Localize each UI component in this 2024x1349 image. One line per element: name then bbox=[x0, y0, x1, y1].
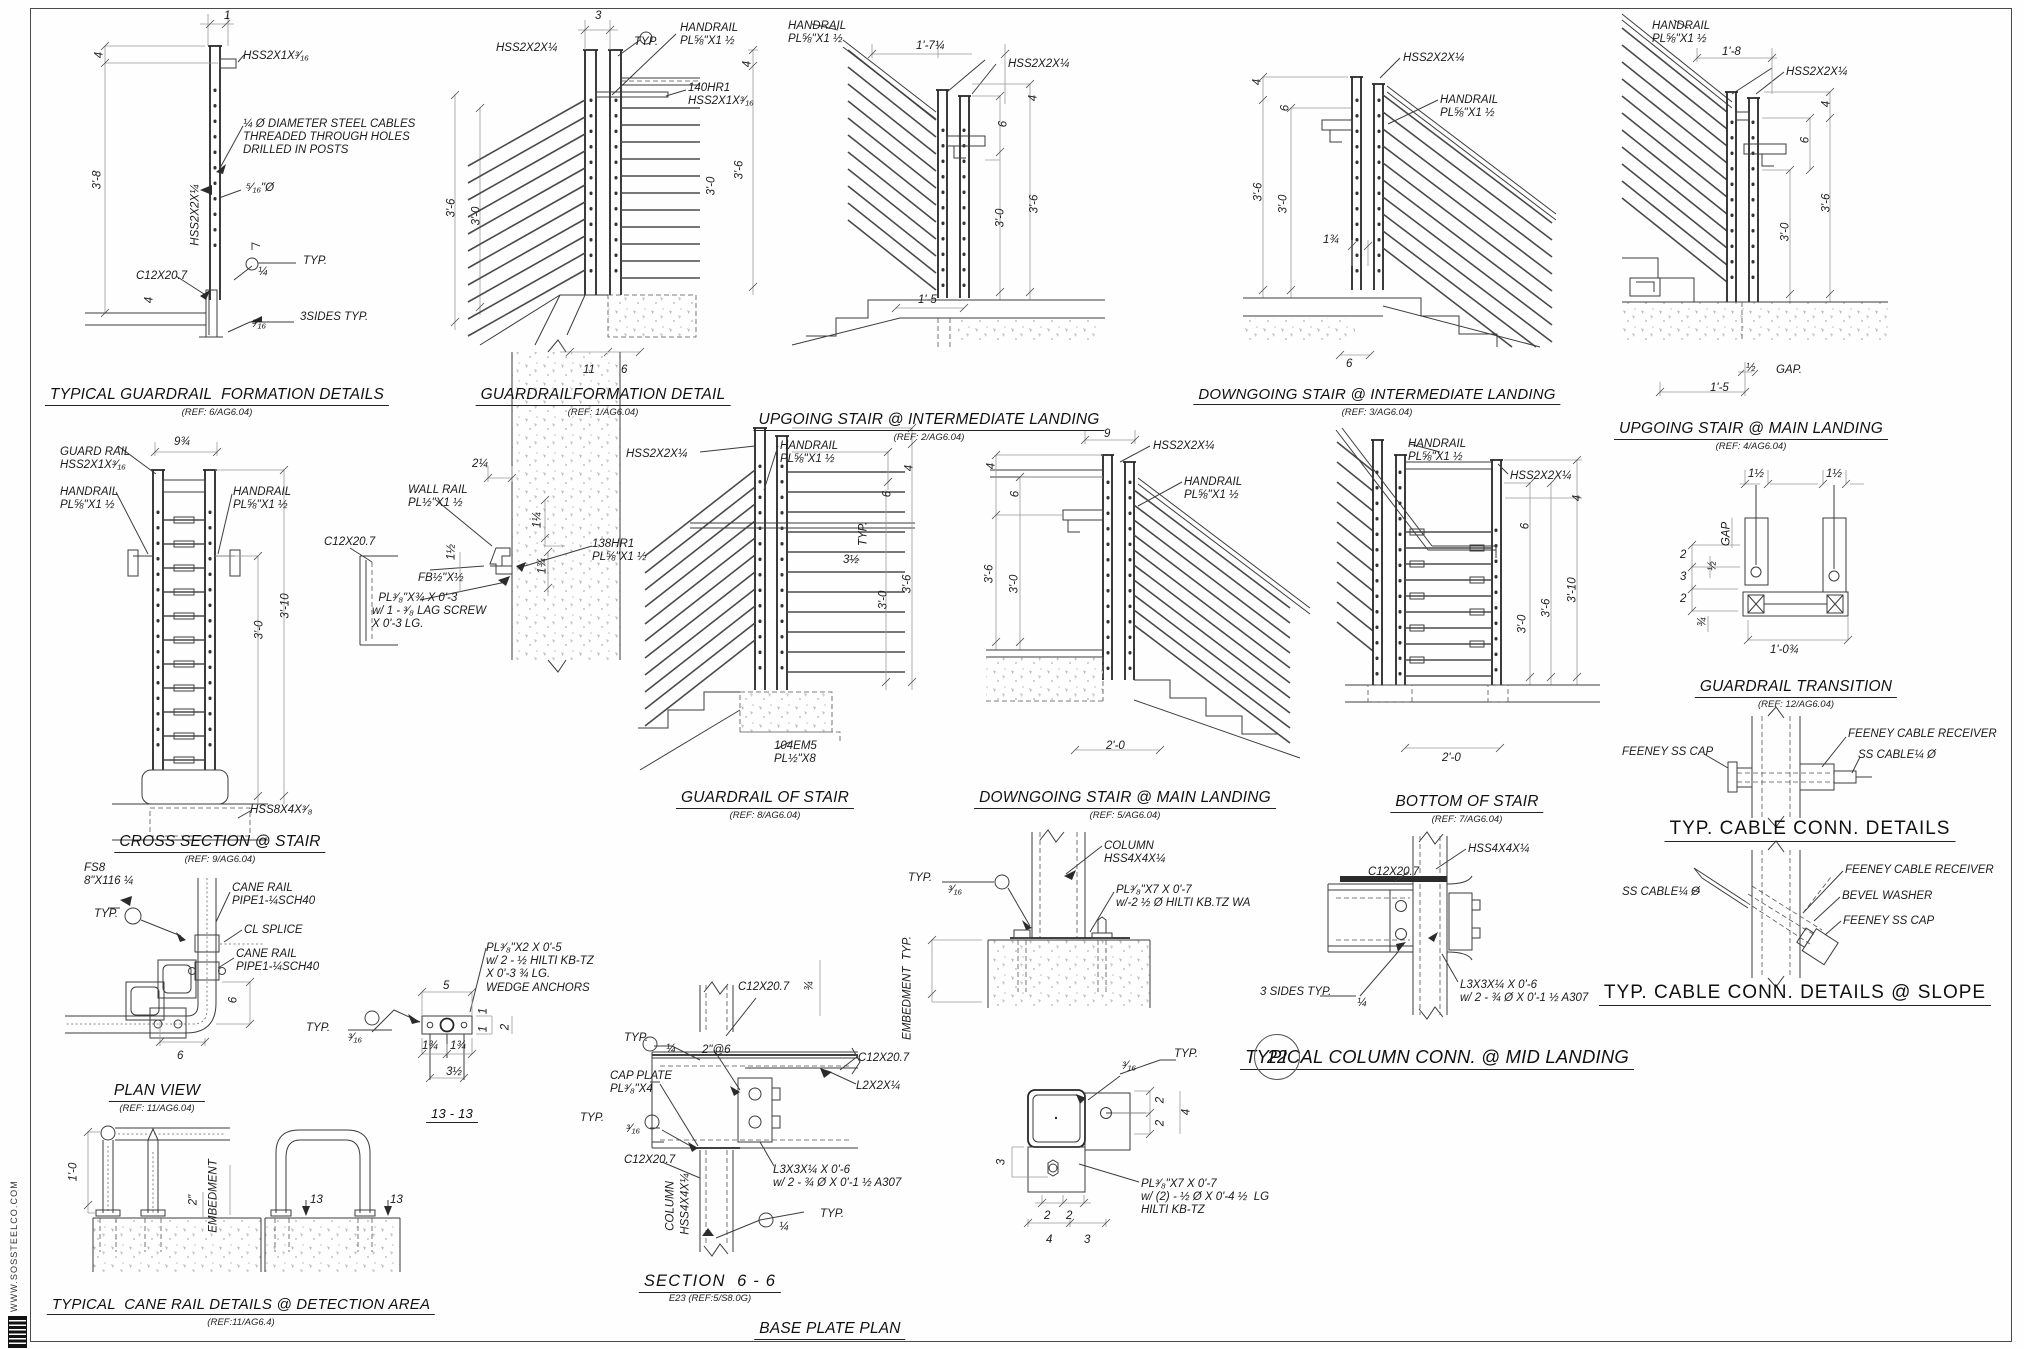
drawing-label: HANDRAIL PL⅝"X1 ½ bbox=[780, 440, 838, 466]
drawing-label: HANDRAIL PL⅝"X1 ½ bbox=[233, 486, 291, 512]
panel-title-p3: UPGOING STAIR @ INTERMEDIATE LANDING bbox=[753, 411, 1104, 431]
drawing-label: TYP. bbox=[820, 1208, 844, 1221]
drawing-label: 3'-0 bbox=[1779, 223, 1792, 242]
drawing-label: L2X2X¼ bbox=[856, 1080, 900, 1093]
drawing-label: 1'-0 bbox=[67, 1163, 80, 1182]
drawing-label: HANDRAIL PL⅝"X1 ½ bbox=[1652, 20, 1710, 46]
panel-title-p2: GUARDRAILFORMATION DETAIL bbox=[476, 386, 731, 406]
panel-title-p11: GUARDRAIL TRANSITION bbox=[1695, 678, 1897, 698]
drawing-label: TYP. bbox=[1174, 1048, 1198, 1061]
annotation-layer: TYPICAL GUARDRAIL FORMATION DETAILS(REF:… bbox=[0, 0, 2024, 1349]
panel-ref-p9: (REF: 5/AG6.04) bbox=[1090, 809, 1161, 821]
drawing-label: COLUMN HSS4X4X¼ bbox=[1104, 840, 1165, 866]
drawing-label: 3 SIDES TYP. bbox=[1260, 986, 1331, 999]
drawing-label: 104EM5 PL½"X8 bbox=[774, 740, 817, 766]
drawing-label: ³⁄₁₆ bbox=[1122, 1060, 1136, 1073]
panel-title-p6: CROSS SECTION @ STAIR bbox=[114, 833, 325, 853]
panel-title-p9: DOWNGOING STAIR @ MAIN LANDING bbox=[974, 789, 1276, 809]
drawing-label: ¾ bbox=[803, 981, 816, 991]
drawing-label: C12X20.7 bbox=[136, 270, 187, 283]
drawing-label: HSS2X2X¼ bbox=[626, 448, 687, 461]
drawing-label: 1¾ bbox=[450, 1040, 466, 1053]
drawing-label: TYP. bbox=[94, 908, 118, 921]
panel-ref-p17: E23 (REF:5/S8.0G) bbox=[669, 1292, 751, 1304]
drawing-label: 5 bbox=[443, 980, 449, 993]
drawing-label: 2'-0 bbox=[1442, 752, 1461, 765]
drawing-label: 3 bbox=[1680, 571, 1686, 584]
panel-ref-p10: (REF: 7/AG6.04) bbox=[1432, 813, 1503, 825]
drawing-label: 4 bbox=[1251, 79, 1264, 85]
drawing-label: GUARD RAIL HSS2X1X³⁄₁₆ bbox=[60, 446, 130, 472]
drawing-label: HANDRAIL PL⅝"X1 ½ bbox=[1440, 94, 1498, 120]
drawing-label: 3'-6 bbox=[733, 161, 746, 180]
drawing-label: ¼ bbox=[779, 1221, 789, 1234]
drawing-label: 6 bbox=[1346, 358, 1352, 371]
drawing-label: 3'-6 bbox=[445, 199, 458, 218]
drawing-label: 6 bbox=[1009, 491, 1022, 497]
drawing-label: 6 bbox=[1799, 137, 1812, 143]
panel-ref-p4: (REF: 3/AG6.04) bbox=[1342, 406, 1413, 418]
drawing-label: 3'-0 bbox=[705, 177, 718, 196]
panel-ref-p11: (REF: 12/AG6.04) bbox=[1758, 698, 1834, 710]
drawing-label: 6 bbox=[997, 121, 1010, 127]
panel-title-p1: TYPICAL GUARDRAIL FORMATION DETAILS bbox=[45, 386, 389, 406]
drawing-label: 1½ bbox=[445, 544, 458, 560]
drawing-label: 4 bbox=[143, 297, 156, 303]
drawing-label: 4 bbox=[1180, 1109, 1193, 1115]
drawing-label: CANE RAIL PIPE1-¼SCH40 bbox=[236, 948, 319, 974]
drawing-label: 2 bbox=[499, 1024, 512, 1030]
drawing-label: 4 bbox=[985, 463, 998, 469]
drawing-label: SS CABLE¼ Ø bbox=[1858, 749, 1936, 762]
drawing-label: ½ bbox=[1706, 561, 1719, 571]
drawing-label: TYP. bbox=[303, 255, 327, 268]
panel-title-p16: 13 - 13 bbox=[426, 1106, 478, 1123]
panel-ref-p15: (REF:11/AG6.4) bbox=[207, 1316, 274, 1328]
drawing-label: HSS2X2X¼ bbox=[1153, 440, 1214, 453]
drawing-label: SS CABLE¼ Ø bbox=[1622, 886, 1700, 899]
drawing-label: HSS2X2X¼ bbox=[1510, 470, 1571, 483]
panel-title-p4: DOWNGOING STAIR @ INTERMEDIATE LANDING bbox=[1193, 386, 1560, 405]
panel-title-p12: TYP. CABLE CONN. DETAILS bbox=[1665, 818, 1956, 842]
drawing-label: HSS2X2X¼ bbox=[496, 42, 557, 55]
drawing-label: 6 bbox=[1519, 523, 1532, 529]
drawing-label: 6 bbox=[621, 364, 627, 377]
panel-title-p10: BOTTOM OF STAIR bbox=[1390, 793, 1543, 813]
panel-title-p20: BASE PLATE PLAN bbox=[754, 1320, 905, 1340]
drawing-label: 3 bbox=[1084, 1234, 1090, 1247]
drawing-label: FS8 8"X116 ¼ bbox=[84, 862, 133, 888]
drawing-label: 3'-0 bbox=[994, 209, 1007, 228]
drawing-label: PL³⁄₈"X7 X 0'-7 w/ (2) - ½ Ø X 0'-4 ½ LG… bbox=[1141, 1178, 1269, 1218]
drawing-label: 2 bbox=[1044, 1210, 1050, 1223]
drawing-label: 1'-7¼ bbox=[916, 40, 944, 53]
drawing-label: HSS4X4X¼ bbox=[679, 1173, 692, 1234]
drawing-label: 1¾ bbox=[1323, 234, 1339, 247]
drawing-label: 13 bbox=[310, 1194, 323, 1207]
panel-ref-p6: (REF: 9/AG6.04) bbox=[185, 853, 256, 865]
drawing-label: ⁵⁄₁₆"Ø bbox=[246, 182, 274, 195]
drawing-label: TYP. bbox=[857, 522, 870, 546]
drawing-label: ³⁄₁₆ bbox=[348, 1032, 362, 1045]
drawing-label: TYP. bbox=[908, 872, 932, 885]
drawing-label: GAP. bbox=[1776, 364, 1802, 377]
drawing-label: CL SPLICE bbox=[244, 924, 303, 937]
drawing-label: 4 bbox=[741, 61, 754, 67]
panel-ref-p3: (REF: 2/AG6.04) bbox=[894, 431, 965, 443]
drawing-label: 4 bbox=[93, 52, 106, 58]
drawing-label: 9 bbox=[1104, 428, 1110, 441]
drawing-label: 2 bbox=[1066, 1210, 1072, 1223]
drawing-label: HANDRAIL PL⅝"X1 ½ bbox=[60, 486, 118, 512]
panel-title-p5: UPGOING STAIR @ MAIN LANDING bbox=[1614, 420, 1888, 440]
drawing-label: 4 bbox=[1571, 495, 1584, 501]
drawing-label: HSS2X2X¼ bbox=[1403, 52, 1464, 65]
drawing-label: 3½ bbox=[446, 1066, 462, 1079]
drawing-label: 1¼ bbox=[531, 512, 544, 528]
drawing-label: 3'-0 bbox=[1008, 575, 1021, 594]
drawing-label: FEENEY SS CAP bbox=[1622, 746, 1713, 759]
drawing-label: 2'-0 bbox=[1106, 740, 1125, 753]
drawing-label: 2 bbox=[1154, 1120, 1167, 1126]
drawing-label: 4 bbox=[1027, 95, 1040, 101]
drawing-label: HSS2X1X³⁄₁₆ bbox=[243, 50, 309, 63]
drawing-label: FEENEY CABLE RECEIVER bbox=[1845, 864, 1994, 877]
drawing-label: 1½ bbox=[1826, 468, 1842, 481]
drawing-label: CAP PLATE PL³⁄₈"X4 bbox=[610, 1070, 672, 1096]
drawing-label: WALL RAIL PL½"X1 ½ bbox=[408, 484, 468, 510]
panel-ref-p2: (REF: 1/AG6.04) bbox=[568, 406, 639, 418]
drawing-label: 3 bbox=[995, 1159, 1008, 1165]
panel-ref-p5: (REF: 4/AG6.04) bbox=[1716, 440, 1787, 452]
drawing-label: TYP. bbox=[306, 1022, 330, 1035]
drawing-label: 140HR1 HSS2X1X³⁄₁₆ bbox=[688, 82, 754, 108]
panel-ref-p1: (REF: 6/AG6.04) bbox=[182, 406, 253, 418]
drawing-label: HANDRAIL PL⅝"X1 ½ bbox=[1184, 476, 1242, 502]
drawing-label: 1 bbox=[477, 1026, 490, 1032]
drawing-label: C12X20.7 bbox=[624, 1154, 675, 1167]
drawing-label: ³⁄₁₆ bbox=[948, 884, 962, 897]
drawing-label: BEVEL WASHER bbox=[1842, 890, 1932, 903]
drawing-label: ¼ Ø DIAMETER STEEL CABLES THREADED THROU… bbox=[243, 118, 415, 158]
drawing-label: C12X20.7 bbox=[738, 981, 789, 994]
drawing-label: TYP. bbox=[624, 1032, 648, 1045]
drawing-label: GAP bbox=[1720, 522, 1733, 546]
drawing-label: 2"@6 bbox=[702, 1044, 731, 1057]
drawing-label: 9¾ bbox=[174, 436, 190, 449]
drawing-label: ¼ bbox=[666, 1043, 676, 1056]
drawing-sheet: TYPICAL GUARDRAIL FORMATION DETAILS(REF:… bbox=[0, 0, 2024, 1349]
panel-ref-p8: (REF: 8/AG6.04) bbox=[730, 809, 801, 821]
drawing-label: 1½ bbox=[1748, 468, 1764, 481]
drawing-label: 2 bbox=[1154, 1097, 1167, 1103]
drawing-label: 3'-0 bbox=[253, 621, 266, 640]
drawing-label: ¼ bbox=[1357, 997, 1367, 1010]
drawing-label: FEENEY SS CAP bbox=[1843, 915, 1934, 928]
panel-title-p17: SECTION 6 - 6 bbox=[639, 1272, 781, 1293]
drawing-label: 3'-0 bbox=[877, 591, 890, 610]
drawing-label: 2¼ bbox=[472, 458, 488, 471]
drawing-label: 6 bbox=[177, 1050, 183, 1063]
drawing-label: HANDRAIL PL⅝"X1 ½ bbox=[680, 22, 738, 48]
drawing-label: 2" bbox=[187, 1195, 200, 1205]
drawing-label: 4 bbox=[1046, 1234, 1052, 1247]
drawing-label: 2 bbox=[1680, 593, 1686, 606]
drawing-label: 3'-0 bbox=[470, 207, 483, 226]
drawing-label: PL³⁄₈"X7 X 0'-7 w/-2 ½ Ø HILTI KB.TZ WA bbox=[1116, 884, 1250, 910]
drawing-label: PL³⁄₈"X2 X 0'-5 w/ 2 - ½ HILTI KB-TZ X 0… bbox=[486, 942, 594, 995]
drawing-label: HSS4X4X¼ bbox=[1468, 843, 1529, 856]
drawing-label: 3'-6 bbox=[1252, 183, 1265, 202]
drawing-label: C12X20.7 bbox=[858, 1052, 909, 1065]
drawing-label: FEENEY CABLE RECEIVER bbox=[1848, 728, 1997, 741]
drawing-label: 6 bbox=[881, 491, 894, 497]
drawing-label: 4 bbox=[1820, 101, 1833, 107]
drawing-label: PL³⁄₈"X¾ X 0'-3 w/ 1 - ³⁄₈ LAG SCREW X 0… bbox=[372, 592, 486, 632]
drawing-label: 3'-6 bbox=[1540, 599, 1553, 618]
drawing-label: 1'-0¾ bbox=[1770, 644, 1798, 657]
drawing-label: C12X20.7 bbox=[324, 536, 375, 549]
drawing-label: HSS2X2X¼ bbox=[189, 184, 202, 245]
drawing-label: C12X20.7 bbox=[1368, 866, 1419, 879]
drawing-label: 6 bbox=[1279, 105, 1292, 111]
drawing-label: 3SIDES TYP. bbox=[300, 311, 368, 324]
drawing-label: HSS2X2X¼ bbox=[1786, 66, 1847, 79]
panel-title-p8: GUARDRAIL OF STAIR bbox=[676, 789, 854, 809]
company-logo bbox=[8, 1316, 27, 1348]
drawing-label: 1'-8 bbox=[1722, 46, 1741, 59]
drawing-label: HANDRAIL PL⅝"X1 ½ bbox=[1408, 438, 1466, 464]
drawing-label: 3 bbox=[595, 10, 601, 23]
drawing-label: 3'-6 bbox=[1028, 195, 1041, 214]
panel-ref-p14: (REF: 11/AG6.04) bbox=[119, 1102, 194, 1114]
panel-title-p15: TYPICAL CANE RAIL DETAILS @ DETECTION AR… bbox=[47, 1296, 435, 1315]
drawing-label: ³⁄₁₆ bbox=[626, 1123, 640, 1136]
drawing-label: L3X3X¼ X 0'-6 w/ 2 - ¾ Ø X 0'-1 ½ A307 bbox=[773, 1164, 901, 1190]
drawing-label: HSS8X4X³⁄₈ bbox=[250, 804, 312, 817]
drawing-label: 3'-10 bbox=[1566, 577, 1579, 602]
drawing-label: COLUMN bbox=[664, 1181, 677, 1231]
drawing-label: 1'-5 bbox=[1710, 382, 1729, 395]
drawing-label: 1¾ bbox=[422, 1040, 438, 1053]
drawing-label: 3'-8 bbox=[91, 171, 104, 190]
drawing-label: CANE RAIL PIPE1-¼SCH40 bbox=[232, 882, 315, 908]
drawing-label: HSS2X2X¼ bbox=[1008, 58, 1069, 71]
drawing-label: 6 bbox=[227, 997, 240, 1003]
detail-number-circle-p19: 22 bbox=[1254, 1034, 1300, 1080]
drawing-label: 1 bbox=[477, 1008, 490, 1014]
drawing-label: HANDRAIL PL⅝"X1 ½ bbox=[788, 20, 846, 46]
drawing-label: ¼ bbox=[258, 266, 268, 279]
panel-title-p13: TYP. CABLE CONN. DETAILS @ SLOPE bbox=[1599, 982, 1991, 1006]
drawing-label: FB½"X½ bbox=[418, 572, 464, 585]
drawing-label: 1'-5 bbox=[918, 294, 937, 307]
drawing-label: EMBEDMENT bbox=[207, 1159, 220, 1232]
drawing-label: TYP. bbox=[580, 1112, 604, 1125]
drawing-label: 3'-10 bbox=[279, 593, 292, 618]
drawing-label: 3'-0 bbox=[1516, 615, 1529, 634]
drawing-label: 3'-0 bbox=[1277, 195, 1290, 214]
company-website-vertical: WWW.SOSSTEELCO.COM bbox=[9, 1180, 19, 1312]
drawing-label: 3'-6 bbox=[983, 565, 996, 584]
drawing-label: ³⁄₁₆ bbox=[252, 318, 266, 331]
drawing-label: 1¾ bbox=[536, 558, 549, 574]
drawing-label: 13 bbox=[390, 1194, 403, 1207]
drawing-label: 3½ bbox=[843, 554, 859, 567]
drawing-label: 4 bbox=[903, 465, 916, 471]
drawing-label: 3'-6 bbox=[1820, 194, 1833, 213]
drawing-label: 1 bbox=[224, 10, 230, 23]
drawing-label: 11 bbox=[583, 364, 595, 377]
drawing-label: ½ bbox=[1746, 362, 1756, 375]
drawing-label: EMBEDMENT TYP. bbox=[901, 936, 914, 1040]
drawing-label: 3'-6 bbox=[901, 575, 914, 594]
drawing-label: TYP. bbox=[634, 36, 658, 49]
drawing-label: ¾ bbox=[1696, 617, 1709, 627]
drawing-label: 138HR1 PL⅝"X1 ½ bbox=[592, 538, 647, 564]
drawing-label: L3X3X¼ X 0'-6 w/ 2 - ¾ Ø X 0'-1 ½ A307 bbox=[1460, 979, 1588, 1005]
drawing-label: 2 bbox=[1680, 549, 1686, 562]
panel-title-p14: PLAN VIEW bbox=[109, 1082, 205, 1102]
